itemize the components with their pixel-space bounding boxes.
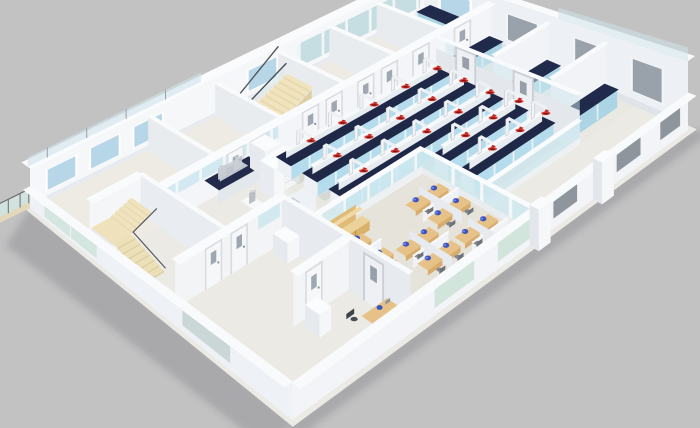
extractor-funnel-mouth (487, 92, 492, 94)
cabinet-divider (467, 149, 469, 165)
extractor-funnel-mouth (461, 80, 466, 82)
fume-stack-cap (235, 156, 241, 158)
monitor-highlight (480, 218, 483, 220)
monitor-highlight (462, 230, 465, 232)
extractor-funnel-mouth (424, 131, 429, 133)
extractor-funnel-mouth (543, 113, 548, 115)
computer-monitor (377, 305, 383, 310)
monitor-highlight (413, 199, 416, 201)
extractor-funnel-mouth (361, 170, 366, 172)
extractor-funnel-mouth (372, 104, 377, 106)
monitor-highlight (453, 199, 456, 201)
extractor-funnel-mouth (335, 155, 340, 157)
extractor-funnel-mouth (430, 99, 435, 101)
monitor-highlight (425, 257, 428, 259)
cabinet-divider (597, 104, 599, 121)
extractor-funnel-mouth (403, 86, 408, 88)
fume-stack-cap (250, 190, 255, 192)
extractor-funnel-mouth (435, 68, 440, 70)
wall-pier (602, 154, 614, 205)
glazing-mullion (416, 0, 419, 9)
extractor-funnel-mouth (308, 140, 313, 142)
extractor-funnel-mouth (366, 136, 371, 138)
door-handle (217, 261, 219, 263)
monitor-highlight (431, 187, 434, 189)
extractor-funnel-mouth (398, 118, 403, 120)
extractor-funnel-mouth (340, 122, 345, 124)
extractor-funnel-mouth (456, 111, 461, 113)
extractor-funnel-mouth (517, 130, 522, 132)
extractor-funnel-mouth (491, 117, 496, 119)
door-handle (369, 92, 371, 94)
extractor-funnel-mouth (463, 135, 468, 137)
cabinet-divider (309, 155, 311, 169)
extractor-funnel-mouth (393, 151, 398, 153)
laboratory-floorplan-scene (0, 0, 700, 428)
cabinet-divider (335, 171, 337, 185)
wall-pier (539, 201, 551, 252)
wall-pier-side (530, 205, 539, 252)
monitor-highlight (421, 231, 424, 233)
extractor-funnel-mouth (516, 101, 521, 103)
door-handle (314, 123, 316, 125)
door-handle (338, 110, 340, 112)
floorplan-3d-render (0, 0, 700, 428)
extractor-funnel-mouth (490, 148, 495, 150)
glazing-mullion (369, 8, 372, 32)
door-handle (243, 246, 245, 248)
monitor-highlight (435, 212, 438, 214)
office-chair-seat (351, 317, 358, 321)
wall-pier-side (593, 158, 602, 204)
monitor-highlight (403, 243, 406, 245)
glazing-mullion (322, 31, 325, 55)
door-handle (466, 39, 468, 41)
monitor-highlight (443, 244, 446, 246)
door-handle (318, 286, 320, 288)
